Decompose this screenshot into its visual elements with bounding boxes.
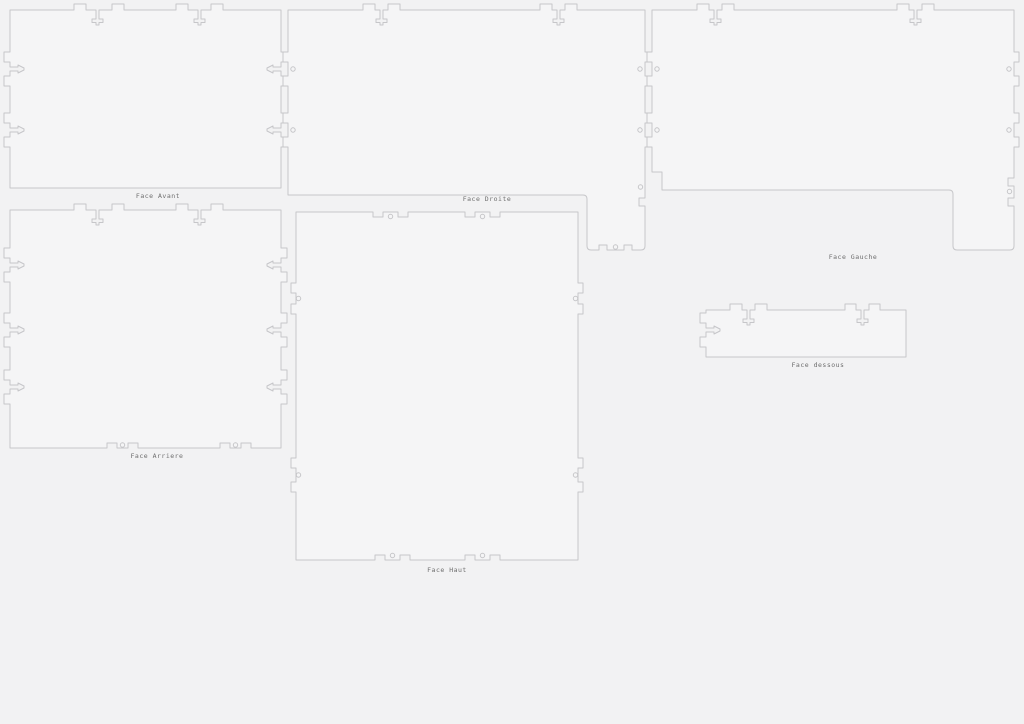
panel-outline-face-dessous: [700, 304, 906, 357]
panel-face-arriere[interactable]: Face Arriere: [4, 204, 287, 460]
panel-face-gauche[interactable]: Face Gauche: [647, 4, 1019, 261]
panel-face-haut[interactable]: Face Haut: [291, 212, 583, 574]
panel-label-face-droite: Face Droite: [463, 195, 512, 203]
panel-label-face-avant: Face Avant: [136, 192, 180, 200]
panel-label-face-haut: Face Haut: [427, 566, 467, 574]
panel-outline-face-haut: [291, 212, 583, 560]
laser-cut-sheet: Face AvantFace DroiteFace GaucheFace Arr…: [0, 0, 1024, 724]
panel-label-face-gauche: Face Gauche: [829, 253, 878, 261]
panel-face-dessous[interactable]: Face dessous: [700, 304, 906, 369]
panel-outline-face-avant: [4, 4, 287, 188]
panel-label-face-dessous: Face dessous: [792, 361, 845, 369]
panel-face-avant[interactable]: Face Avant: [4, 4, 287, 200]
panel-outline-face-gauche: [647, 4, 1019, 250]
panel-outline-face-arriere: [4, 204, 287, 448]
panel-label-face-arriere: Face Arriere: [131, 452, 184, 460]
cut-sheet: Face AvantFace DroiteFace GaucheFace Arr…: [0, 0, 1024, 724]
